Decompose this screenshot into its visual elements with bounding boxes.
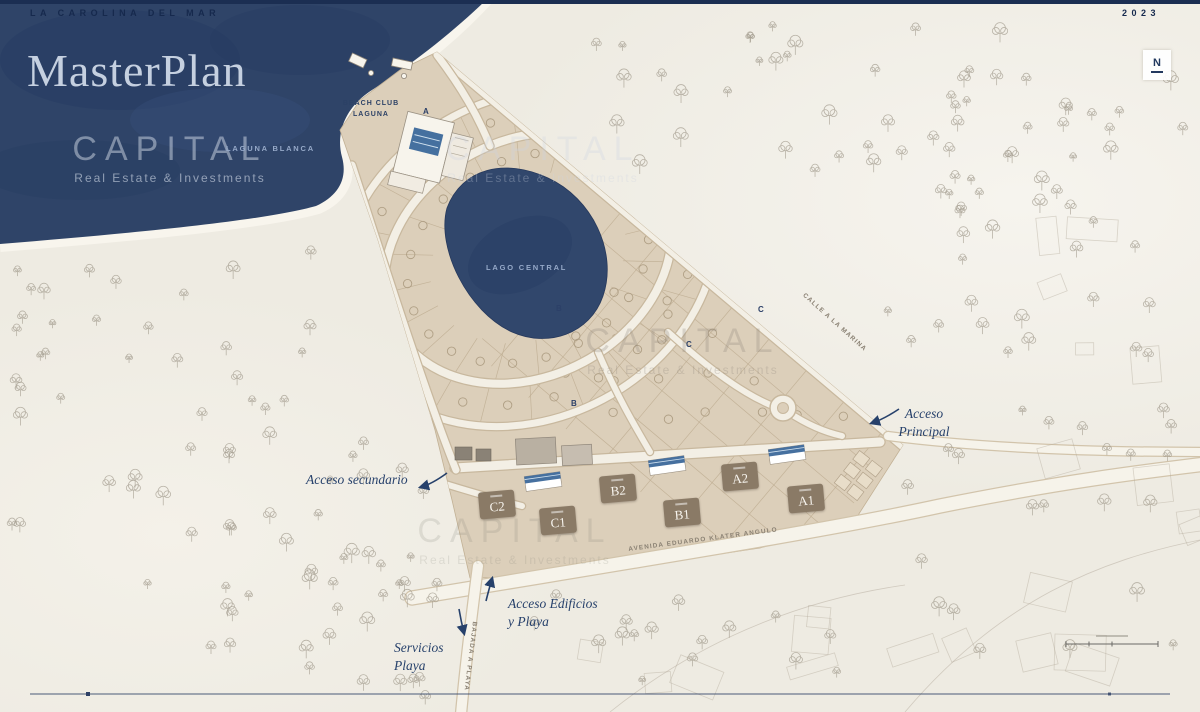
sector-marker-c2: C (686, 340, 692, 349)
acceso-principal-label: Acceso Principal (892, 405, 956, 440)
page-title: MasterPlan (27, 44, 247, 97)
acceso-edificios-label: Acceso Edificios y Playa (508, 595, 598, 630)
project-name: LA CAROLINA DEL MAR (30, 8, 220, 18)
bottom-rule (30, 692, 1170, 696)
building-plaque-a1: A1 (787, 483, 825, 513)
sector-marker-c: C (758, 305, 764, 314)
compass-north-icon: N (1143, 50, 1171, 80)
scale-bar (1066, 636, 1158, 647)
building-plaque-a2: A2 (721, 461, 759, 491)
building-plaque-b1: B1 (663, 497, 701, 527)
year-label: 2023 (1122, 8, 1160, 18)
beach-club-label: BEACH CLUB LAGUNA (340, 98, 402, 120)
top-border (0, 0, 1200, 4)
roundabout-icon (770, 395, 796, 421)
building-plaque-c2: C2 (478, 489, 516, 519)
building-plaque-b2: B2 (599, 473, 637, 503)
compass-letter: N (1153, 57, 1161, 69)
sector-marker-b2: B (571, 399, 577, 408)
masterplan-page: LA CAROLINA DEL MAR MasterPlan 2023 N CA… (0, 0, 1200, 712)
ocean-label: LAGUNA BLANCA (226, 144, 315, 153)
arrow-down-playa-icon (459, 609, 464, 633)
building-plaque-c1: C1 (539, 505, 577, 535)
sector-marker-b: B (556, 304, 562, 313)
sector-marker-a: A (423, 107, 429, 116)
lake-label: LAGO CENTRAL (486, 263, 567, 272)
servicios-playa-label: Servicios Playa (394, 639, 444, 674)
acceso-secundario-label: Acceso secundario (306, 471, 408, 489)
masterplan-map (0, 0, 1200, 712)
arrow-left-secundario-icon (421, 473, 447, 487)
